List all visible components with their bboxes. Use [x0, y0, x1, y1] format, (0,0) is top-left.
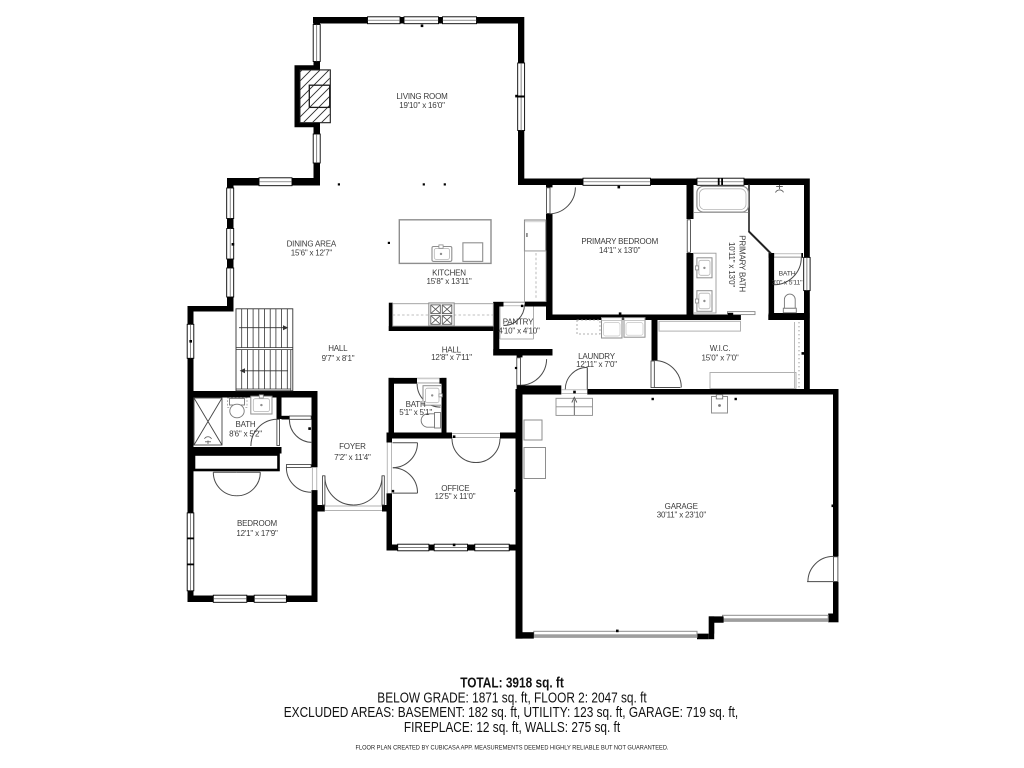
svg-text:3'0" x 5'11": 3'0" x 5'11" — [772, 279, 803, 286]
svg-text:W.I.C.: W.I.C. — [710, 344, 731, 353]
svg-text:4'10" x 4'10": 4'10" x 4'10" — [498, 326, 540, 335]
svg-text:12'1" x 17'9": 12'1" x 17'9" — [236, 529, 278, 538]
svg-text:BATH: BATH — [236, 420, 256, 429]
svg-text:12'5" x 11'0": 12'5" x 11'0" — [435, 492, 476, 501]
svg-text:7'2" x 11'4": 7'2" x 11'4" — [334, 453, 371, 462]
svg-text:PRIMARY BEDROOM: PRIMARY BEDROOM — [581, 237, 658, 246]
svg-text:LIVING ROOM: LIVING ROOM — [396, 92, 448, 101]
svg-text:12'11" x 7'0": 12'11" x 7'0" — [576, 360, 617, 369]
svg-text:PRIMARY BATH: PRIMARY BATH — [738, 235, 747, 292]
svg-text:10'11" x 13'0": 10'11" x 13'0" — [727, 242, 736, 287]
svg-text:12'8" x 7'11": 12'8" x 7'11" — [431, 353, 472, 362]
svg-text:5'1" x 5'1": 5'1" x 5'1" — [399, 408, 432, 417]
svg-text:FOYER: FOYER — [339, 442, 366, 451]
svg-text:BATH: BATH — [779, 271, 796, 278]
svg-text:9'7" x 8'1": 9'7" x 8'1" — [322, 354, 355, 363]
svg-text:30'11" x 23'10": 30'11" x 23'10" — [657, 511, 707, 520]
svg-text:8'6" x 5'2": 8'6" x 5'2" — [229, 429, 262, 438]
svg-text:FLOOR PLAN CREATED BY CUBICASA: FLOOR PLAN CREATED BY CUBICASA APP. MEAS… — [355, 745, 668, 751]
svg-text:KITCHEN: KITCHEN — [432, 268, 466, 277]
svg-text:FIREPLACE: 12 sq. ft, WALLS: 2: FIREPLACE: 12 sq. ft, WALLS: 275 sq. ft — [404, 719, 620, 736]
svg-text:DINING AREA: DINING AREA — [287, 240, 337, 249]
svg-text:15'6" x 12'7": 15'6" x 12'7" — [291, 249, 333, 258]
svg-text:14'1" x 13'0": 14'1" x 13'0" — [599, 246, 641, 255]
svg-text:PANTRY: PANTRY — [503, 317, 534, 326]
svg-text:HALL: HALL — [328, 344, 348, 353]
svg-text:15'8" x 13'11": 15'8" x 13'11" — [427, 277, 472, 286]
svg-text:BEDROOM: BEDROOM — [237, 519, 277, 528]
svg-text:19'10" x 16'0": 19'10" x 16'0" — [399, 101, 445, 110]
svg-text:15'0" x 7'0": 15'0" x 7'0" — [701, 353, 738, 362]
